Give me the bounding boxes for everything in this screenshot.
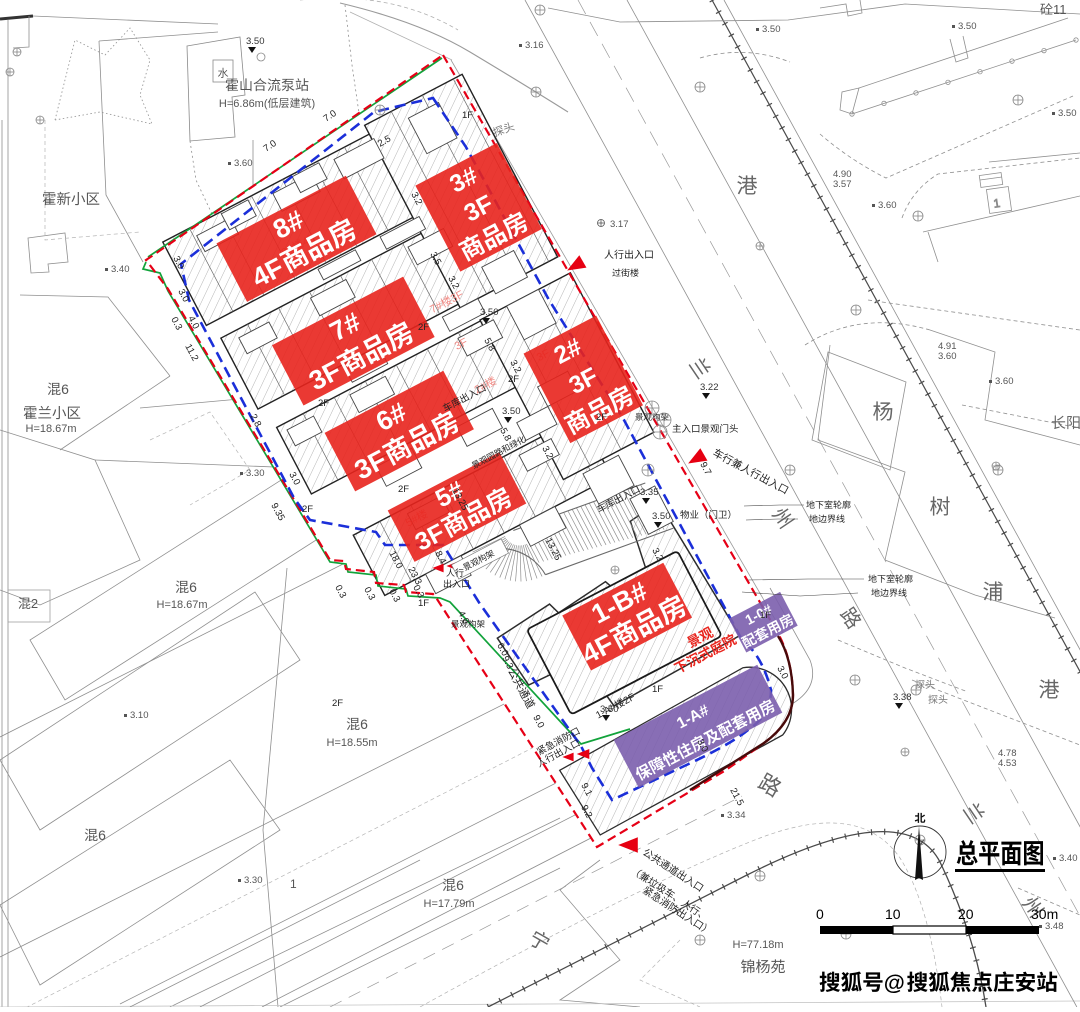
- svg-text:0: 0: [816, 906, 824, 922]
- svg-text:H=18.67m: H=18.67m: [26, 423, 77, 435]
- svg-text:3.50: 3.50: [246, 36, 265, 47]
- svg-text:2: 2: [31, 596, 38, 611]
- svg-text:H=17.79m: H=17.79m: [424, 898, 475, 910]
- svg-text:3.40: 3.40: [111, 264, 130, 275]
- svg-text:H=6.86m(: H=6.86m(: [219, 98, 268, 110]
- svg-text:3.50: 3.50: [502, 406, 521, 417]
- svg-text:2F: 2F: [318, 398, 329, 409]
- svg-text:4.53: 4.53: [998, 758, 1017, 769]
- svg-text:3.57: 3.57: [833, 179, 852, 190]
- svg-text:30m: 30m: [1031, 906, 1058, 922]
- svg-text:H=18.55m: H=18.55m: [327, 737, 378, 749]
- svg-text:6: 6: [189, 579, 197, 595]
- svg-text:3.38: 3.38: [893, 692, 912, 703]
- svg-text:3.60: 3.60: [878, 200, 897, 211]
- svg-text:3.17: 3.17: [610, 219, 629, 230]
- svg-text:@: @: [884, 970, 905, 995]
- svg-text:2F: 2F: [418, 322, 429, 333]
- svg-text:2F: 2F: [508, 374, 519, 385]
- svg-text:11: 11: [1053, 2, 1067, 17]
- svg-text:1F: 1F: [462, 110, 473, 121]
- svg-text:6: 6: [360, 716, 368, 732]
- svg-text:3.50: 3.50: [1058, 108, 1077, 119]
- svg-text:10: 10: [885, 906, 901, 922]
- svg-text:3.16: 3.16: [525, 40, 544, 51]
- svg-text:3.60: 3.60: [995, 376, 1014, 387]
- svg-text:6: 6: [98, 827, 106, 843]
- svg-text:3.60: 3.60: [234, 158, 253, 169]
- svg-text:1: 1: [290, 877, 297, 891]
- svg-text:3.35: 3.35: [640, 487, 659, 498]
- svg-text:H=18.67m: H=18.67m: [157, 599, 208, 611]
- svg-text:20: 20: [958, 906, 974, 922]
- svg-text:): ): [312, 98, 316, 110]
- svg-text:2F: 2F: [398, 484, 409, 495]
- svg-text:1F: 1F: [652, 684, 663, 695]
- svg-text:H=77.18m: H=77.18m: [733, 939, 784, 951]
- svg-text:3.50: 3.50: [480, 307, 499, 318]
- svg-text:3.30: 3.30: [246, 468, 265, 479]
- svg-text:3.50: 3.50: [600, 704, 619, 715]
- svg-text:2F: 2F: [596, 412, 607, 423]
- svg-text:2F: 2F: [302, 504, 313, 515]
- svg-text:3.50: 3.50: [762, 24, 781, 35]
- svg-text:3.40: 3.40: [1059, 853, 1078, 864]
- svg-text:1F: 1F: [760, 610, 771, 621]
- svg-text:3.22: 3.22: [700, 382, 719, 393]
- svg-text:6: 6: [61, 381, 69, 397]
- svg-text:3.60: 3.60: [938, 351, 957, 362]
- svg-text:3.30: 3.30: [244, 875, 263, 886]
- svg-text:3.50: 3.50: [958, 21, 977, 32]
- svg-text:2F: 2F: [332, 698, 343, 709]
- svg-text:3.50: 3.50: [652, 511, 671, 522]
- svg-text:3.34: 3.34: [727, 810, 746, 821]
- svg-text:3.10: 3.10: [130, 710, 149, 721]
- svg-text:6: 6: [456, 877, 464, 893]
- svg-text:1F: 1F: [418, 598, 429, 609]
- svg-text:3.48: 3.48: [1045, 921, 1064, 932]
